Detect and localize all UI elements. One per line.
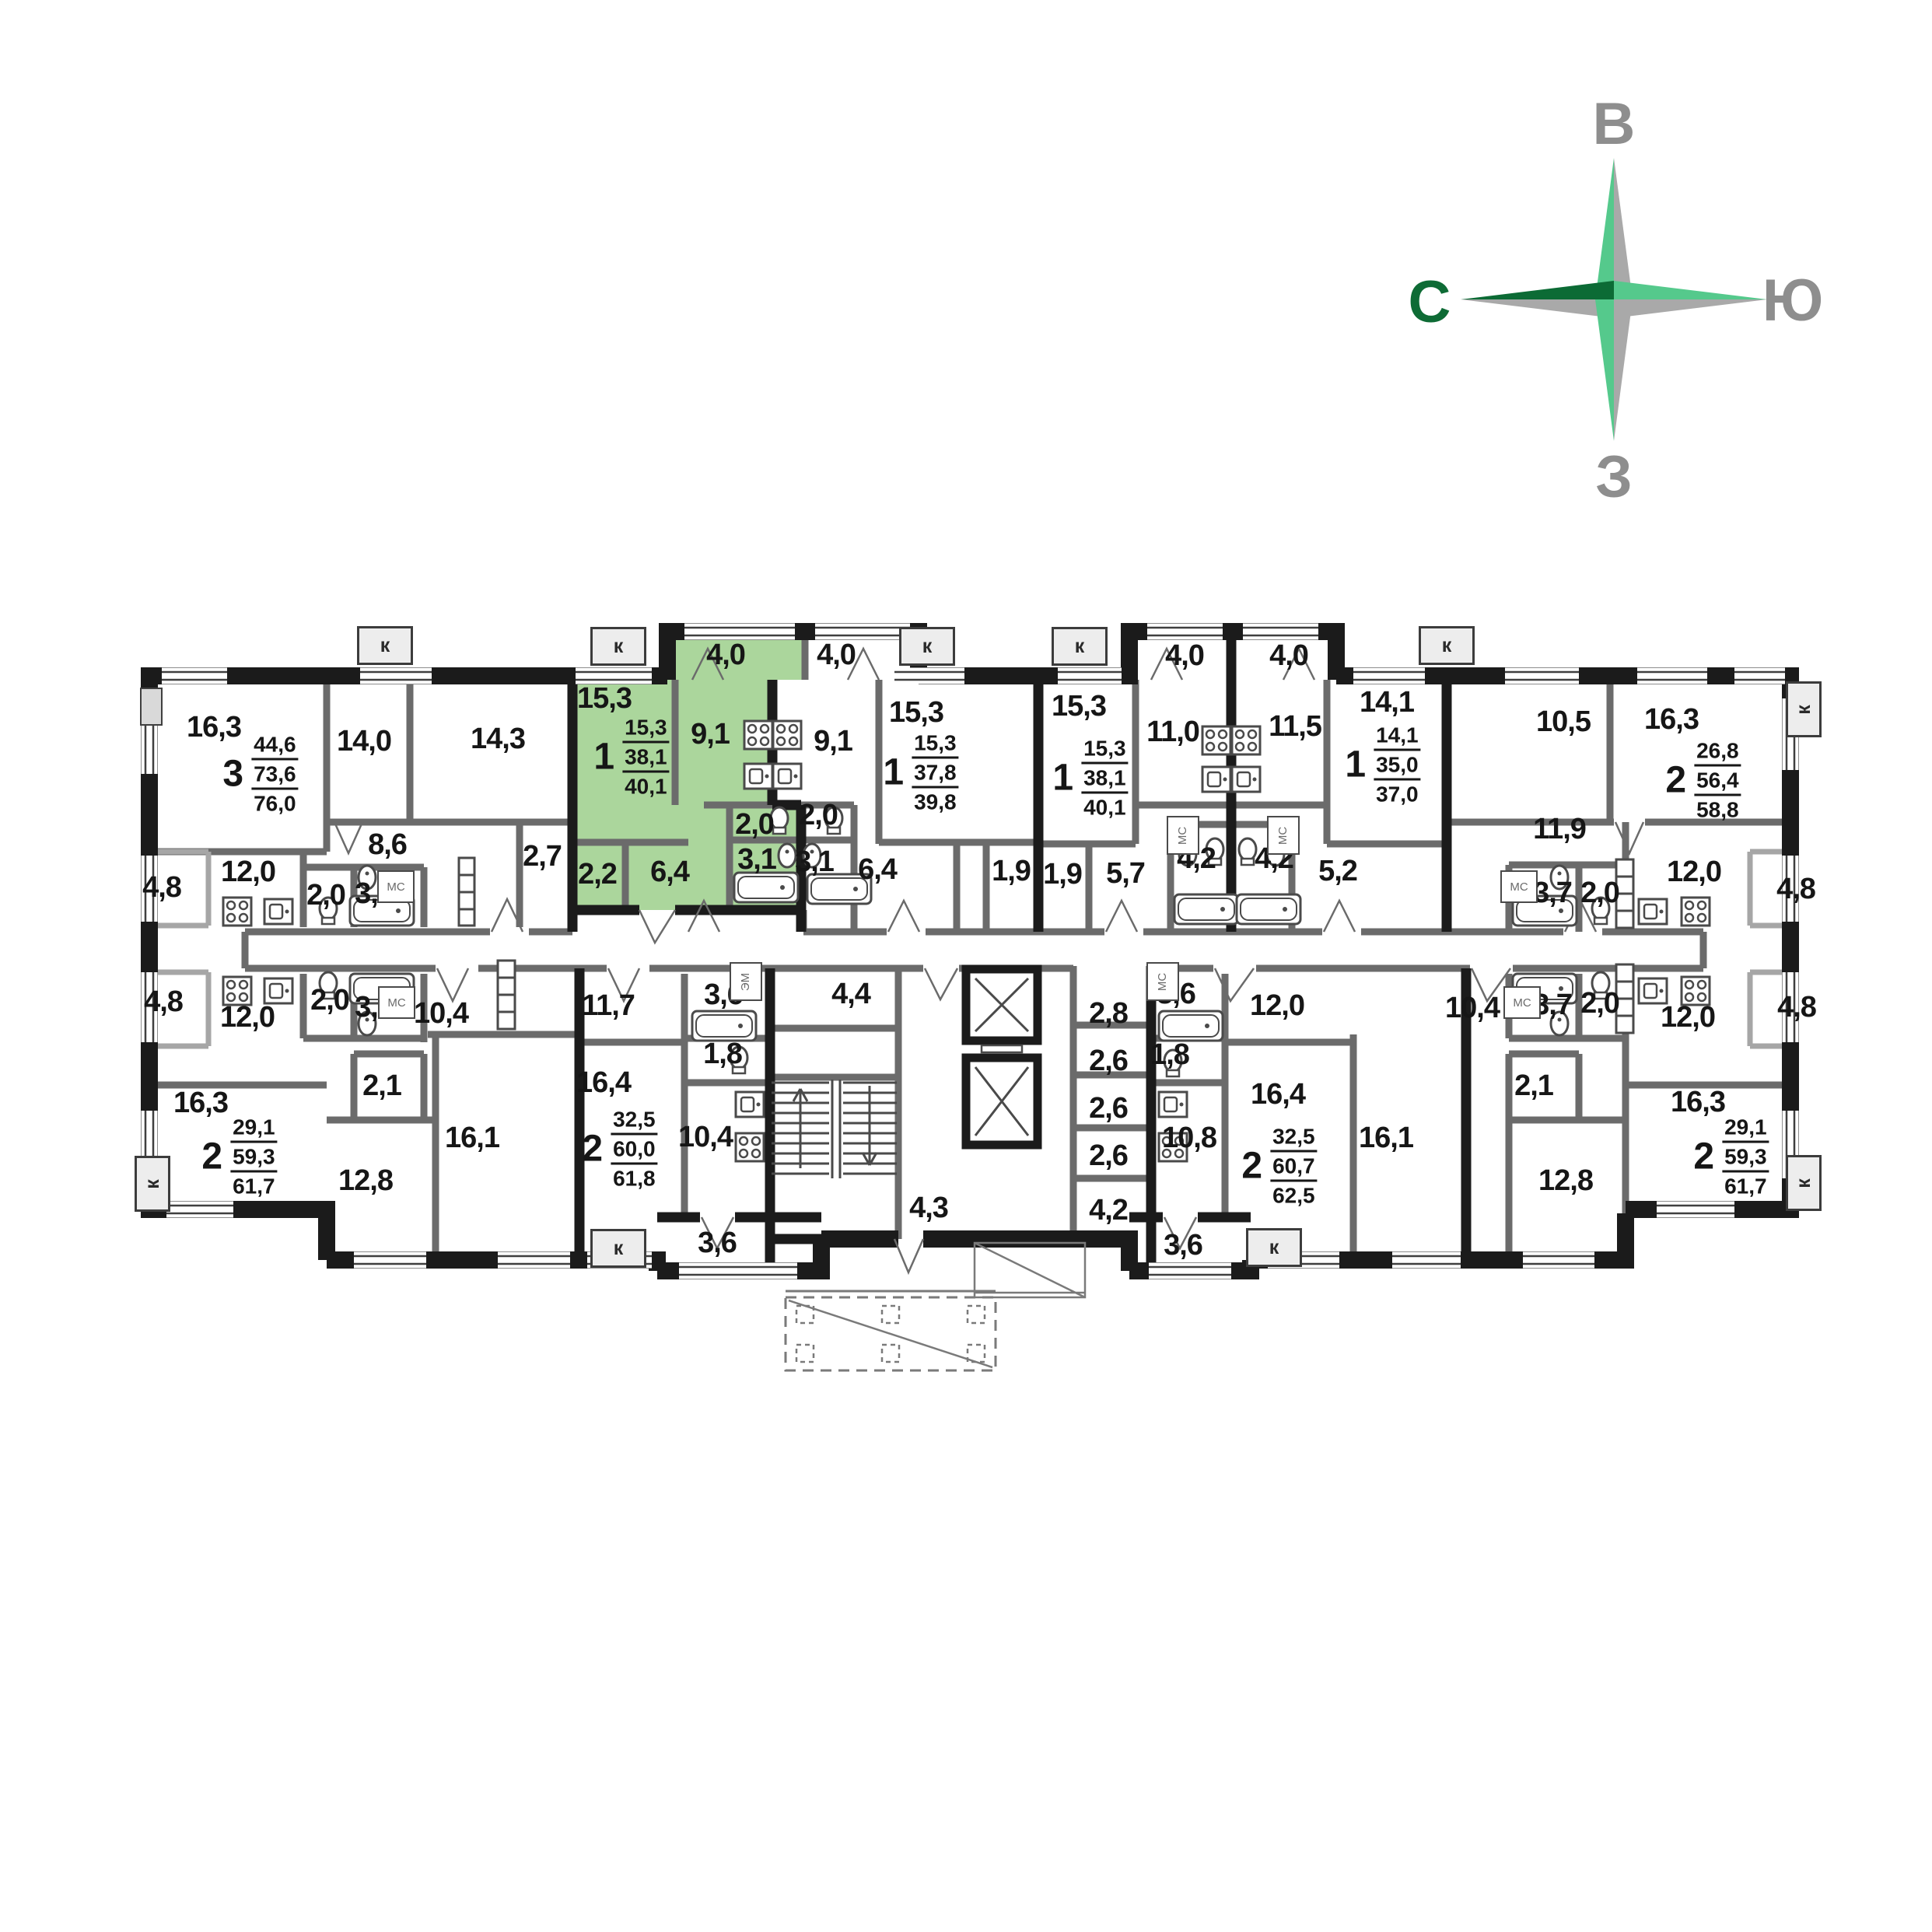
apartment-area-value: 37,0 bbox=[1374, 781, 1421, 808]
apartment-summary: 232,560,061,8 bbox=[582, 1106, 657, 1192]
apartment-room-count: 1 bbox=[1345, 744, 1366, 786]
room-area-label: 14,1 bbox=[1360, 688, 1414, 717]
room-area-label: 4,8 bbox=[142, 873, 181, 902]
room-area-label: 4,8 bbox=[1776, 874, 1815, 904]
room-area-label: 2,6 bbox=[1089, 1141, 1128, 1171]
room-area-label: 12,8 bbox=[1538, 1166, 1593, 1195]
k-marker: к bbox=[1419, 626, 1475, 665]
appliance-box: ЭМ bbox=[730, 962, 762, 1001]
room-area-label: 2,1 bbox=[1514, 1071, 1553, 1101]
room-area-label: 3,7 bbox=[1533, 878, 1572, 908]
room-area-label: 6,4 bbox=[858, 855, 897, 884]
room-area-label: 10,4 bbox=[414, 999, 468, 1028]
apartment-summary: 232,560,762,5 bbox=[1241, 1123, 1317, 1209]
apartment-summary: 229,159,361,7 bbox=[1693, 1114, 1769, 1200]
apartment-area-value: 29,1 bbox=[230, 1114, 278, 1143]
appliance-box: МС bbox=[377, 870, 415, 903]
apartment-room-count: 2 bbox=[1241, 1145, 1262, 1188]
apartment-room-count: 2 bbox=[1665, 759, 1686, 802]
apartment-room-count: 1 bbox=[883, 751, 904, 794]
room-area-label: 4,3 bbox=[909, 1193, 948, 1223]
room-area-label: 12,0 bbox=[221, 857, 275, 887]
apartment-area-value: 73,6 bbox=[251, 761, 299, 790]
floor-plan-page: В Ю З С 16,314,014,315,39,14,04,09,115,3… bbox=[0, 0, 1932, 1932]
elevator-shafts bbox=[966, 969, 1038, 1145]
room-area-label: 16,4 bbox=[1251, 1080, 1305, 1109]
appliance-box: МС bbox=[1267, 816, 1300, 855]
room-area-label: 9,1 bbox=[814, 726, 852, 756]
room-area-label: 1,9 bbox=[1043, 859, 1082, 889]
room-area-label: 10,4 bbox=[678, 1122, 733, 1152]
apartment-area-value: 44,6 bbox=[251, 731, 299, 761]
apartment-area-value: 15,3 bbox=[912, 730, 959, 759]
apartment-summary: 344,673,676,0 bbox=[222, 731, 298, 817]
apartment-area-value: 61,8 bbox=[611, 1165, 658, 1192]
k-marker: к bbox=[899, 627, 955, 666]
compass-east-label: В bbox=[1593, 95, 1636, 154]
k-marker: к bbox=[590, 1229, 646, 1268]
apartment-area-value: 37,8 bbox=[912, 759, 959, 789]
bathtub-icon bbox=[734, 873, 798, 902]
apartment-room-count: 1 bbox=[1052, 757, 1073, 800]
room-area-label: 3,6 bbox=[1164, 1230, 1202, 1260]
k-marker: к bbox=[590, 627, 646, 666]
room-area-label: 9,1 bbox=[691, 719, 730, 749]
room-area-label: 16,4 bbox=[576, 1068, 631, 1097]
stairs-up-arrow bbox=[793, 1089, 807, 1168]
room-area-label: 14,0 bbox=[337, 726, 391, 756]
apartment-area-value: 14,1 bbox=[1374, 722, 1421, 751]
room-area-label: 2,0 bbox=[306, 880, 345, 910]
apartment-area-value: 59,3 bbox=[230, 1143, 278, 1173]
room-area-label: 4,0 bbox=[1165, 641, 1204, 670]
room-area-label: 5,7 bbox=[1106, 859, 1145, 888]
apartment-area-value: 62,5 bbox=[1270, 1182, 1318, 1209]
apartment-area-value: 40,1 bbox=[1081, 794, 1129, 821]
appliance-box: МС bbox=[1146, 962, 1179, 1001]
room-area-label: 2,6 bbox=[1089, 1094, 1128, 1123]
apartment-area-value: 56,4 bbox=[1694, 767, 1741, 796]
room-area-label: 6,4 bbox=[650, 857, 689, 887]
compass-north-label: С bbox=[1409, 273, 1451, 332]
apartment-area-value: 26,8 bbox=[1694, 737, 1741, 767]
apartment-area-value: 60,0 bbox=[611, 1136, 658, 1165]
appliance-box: МС bbox=[1167, 816, 1199, 855]
room-area-label: 12,0 bbox=[1667, 857, 1721, 887]
room-area-label: 10,8 bbox=[1162, 1123, 1216, 1153]
room-area-label: 15,3 bbox=[889, 698, 943, 727]
apartment-area-value: 32,5 bbox=[1270, 1123, 1318, 1153]
entrance-ramp bbox=[975, 1243, 1085, 1297]
room-area-label: 10,4 bbox=[1445, 993, 1500, 1023]
room-area-label: 4,0 bbox=[706, 640, 745, 670]
apartment-summary: 115,337,839,8 bbox=[883, 730, 958, 816]
apartment-area-value: 29,1 bbox=[1722, 1114, 1769, 1143]
apartment-area-value: 59,3 bbox=[1722, 1143, 1769, 1173]
apartment-summary: 226,856,458,8 bbox=[1665, 737, 1741, 824]
room-area-label: 4,4 bbox=[831, 979, 870, 1009]
room-area-label: 2,0 bbox=[1580, 878, 1619, 908]
apartment-area-value: 35,0 bbox=[1374, 751, 1421, 781]
floor-plan-svg bbox=[0, 0, 1932, 1932]
basin-icon bbox=[779, 844, 796, 867]
room-area-label: 14,3 bbox=[471, 724, 525, 754]
room-area-label: 2,8 bbox=[1089, 999, 1128, 1028]
k-marker: к bbox=[1786, 1155, 1822, 1211]
apartment-area-value: 15,3 bbox=[1081, 735, 1129, 765]
apartment-room-count: 3 bbox=[222, 753, 243, 796]
room-area-label: 5,2 bbox=[1318, 856, 1357, 886]
room-area-label: 4,0 bbox=[817, 640, 856, 670]
apartment-area-value: 38,1 bbox=[622, 744, 670, 773]
apartment-room-count: 2 bbox=[1693, 1136, 1714, 1178]
apartment-area-value: 32,5 bbox=[611, 1106, 658, 1136]
k-marker: к bbox=[1246, 1228, 1302, 1267]
room-area-label: 8,6 bbox=[368, 830, 407, 859]
room-area-label: 2,0 bbox=[1580, 989, 1619, 1018]
compass-west-label: З bbox=[1595, 448, 1633, 507]
apartment-summary: 229,159,361,7 bbox=[201, 1114, 277, 1200]
room-area-label: 16,1 bbox=[1359, 1123, 1413, 1153]
apartment-area-value: 39,8 bbox=[912, 789, 959, 816]
room-area-label: 11,5 bbox=[1269, 712, 1321, 741]
room-area-label: 2,0 bbox=[799, 800, 838, 830]
room-area-label: 1,9 bbox=[992, 856, 1031, 886]
apartment-area-value: 40,1 bbox=[622, 773, 670, 800]
room-area-label: 12,0 bbox=[220, 1003, 275, 1032]
apartment-room-count: 2 bbox=[201, 1136, 222, 1178]
stairwell bbox=[772, 1080, 897, 1178]
apartment-area-value: 61,7 bbox=[1722, 1173, 1769, 1200]
room-area-label: 2,0 bbox=[735, 810, 774, 839]
room-area-label: 2,7 bbox=[523, 842, 562, 871]
room-area-label: 2,0 bbox=[310, 985, 349, 1015]
room-area-label: 12,0 bbox=[1250, 991, 1304, 1020]
room-area-label: 10,5 bbox=[1536, 707, 1591, 737]
k-marker: к bbox=[1052, 627, 1108, 666]
apartment-room-count: 1 bbox=[593, 736, 614, 779]
room-area-label: 16,3 bbox=[1671, 1087, 1725, 1117]
kitchen-sink-icon bbox=[744, 764, 772, 789]
apartment-area-value: 38,1 bbox=[1081, 765, 1129, 794]
room-area-label: 3,6 bbox=[698, 1228, 737, 1258]
stove-icon bbox=[744, 721, 772, 749]
apartment-area-value: 15,3 bbox=[622, 714, 670, 744]
apartment-room-count: 2 bbox=[582, 1128, 603, 1171]
apartment-summary: 114,135,037,0 bbox=[1345, 722, 1420, 808]
room-area-label: 12,8 bbox=[338, 1166, 393, 1195]
room-area-label: 11,7 bbox=[582, 991, 635, 1020]
room-area-label: 11,9 bbox=[1533, 814, 1586, 844]
room-area-label: 15,3 bbox=[577, 684, 632, 713]
compass-south-label: Ю bbox=[1762, 271, 1823, 331]
k-marker: к bbox=[357, 626, 413, 665]
room-area-label: 1,8 bbox=[1150, 1040, 1189, 1069]
apartment-summary: 115,338,140,1 bbox=[593, 714, 669, 800]
k-marker: к bbox=[135, 1156, 170, 1212]
room-area-label: 4,0 bbox=[1269, 641, 1308, 670]
room-area-label: 15,3 bbox=[1052, 691, 1106, 721]
appliance-box: МС bbox=[1503, 986, 1541, 1019]
room-area-label: 2,2 bbox=[578, 859, 617, 889]
room-area-label: 3,1 bbox=[737, 845, 776, 874]
room-area-label: 12,0 bbox=[1661, 1003, 1715, 1032]
k-marker: к bbox=[1786, 681, 1822, 737]
room-area-label: 11,0 bbox=[1146, 717, 1199, 747]
room-area-label: 16,1 bbox=[445, 1123, 499, 1153]
room-area-label: 16,3 bbox=[1644, 705, 1699, 734]
room-area-label: 3,1 bbox=[795, 847, 834, 877]
room-area-label: 2,6 bbox=[1089, 1046, 1128, 1076]
room-area-label: 1,8 bbox=[703, 1039, 742, 1069]
room-area-label: 2,1 bbox=[362, 1071, 401, 1101]
apartment-area-value: 60,7 bbox=[1270, 1153, 1318, 1182]
room-area-label: 4,2 bbox=[1089, 1195, 1128, 1225]
room-area-label: 4,8 bbox=[1777, 992, 1816, 1022]
appliance-box: МС bbox=[1500, 870, 1538, 903]
apartment-area-value: 58,8 bbox=[1694, 796, 1741, 824]
apartment-area-value: 76,0 bbox=[251, 790, 299, 817]
appliance-box: МС bbox=[378, 986, 415, 1019]
room-area-label: 4,8 bbox=[144, 987, 183, 1017]
apartment-area-value: 61,7 bbox=[230, 1173, 278, 1200]
entrance-porch bbox=[786, 1243, 1085, 1370]
apartment-summary: 115,338,140,1 bbox=[1052, 735, 1128, 821]
compass-rose bbox=[1461, 158, 1767, 441]
